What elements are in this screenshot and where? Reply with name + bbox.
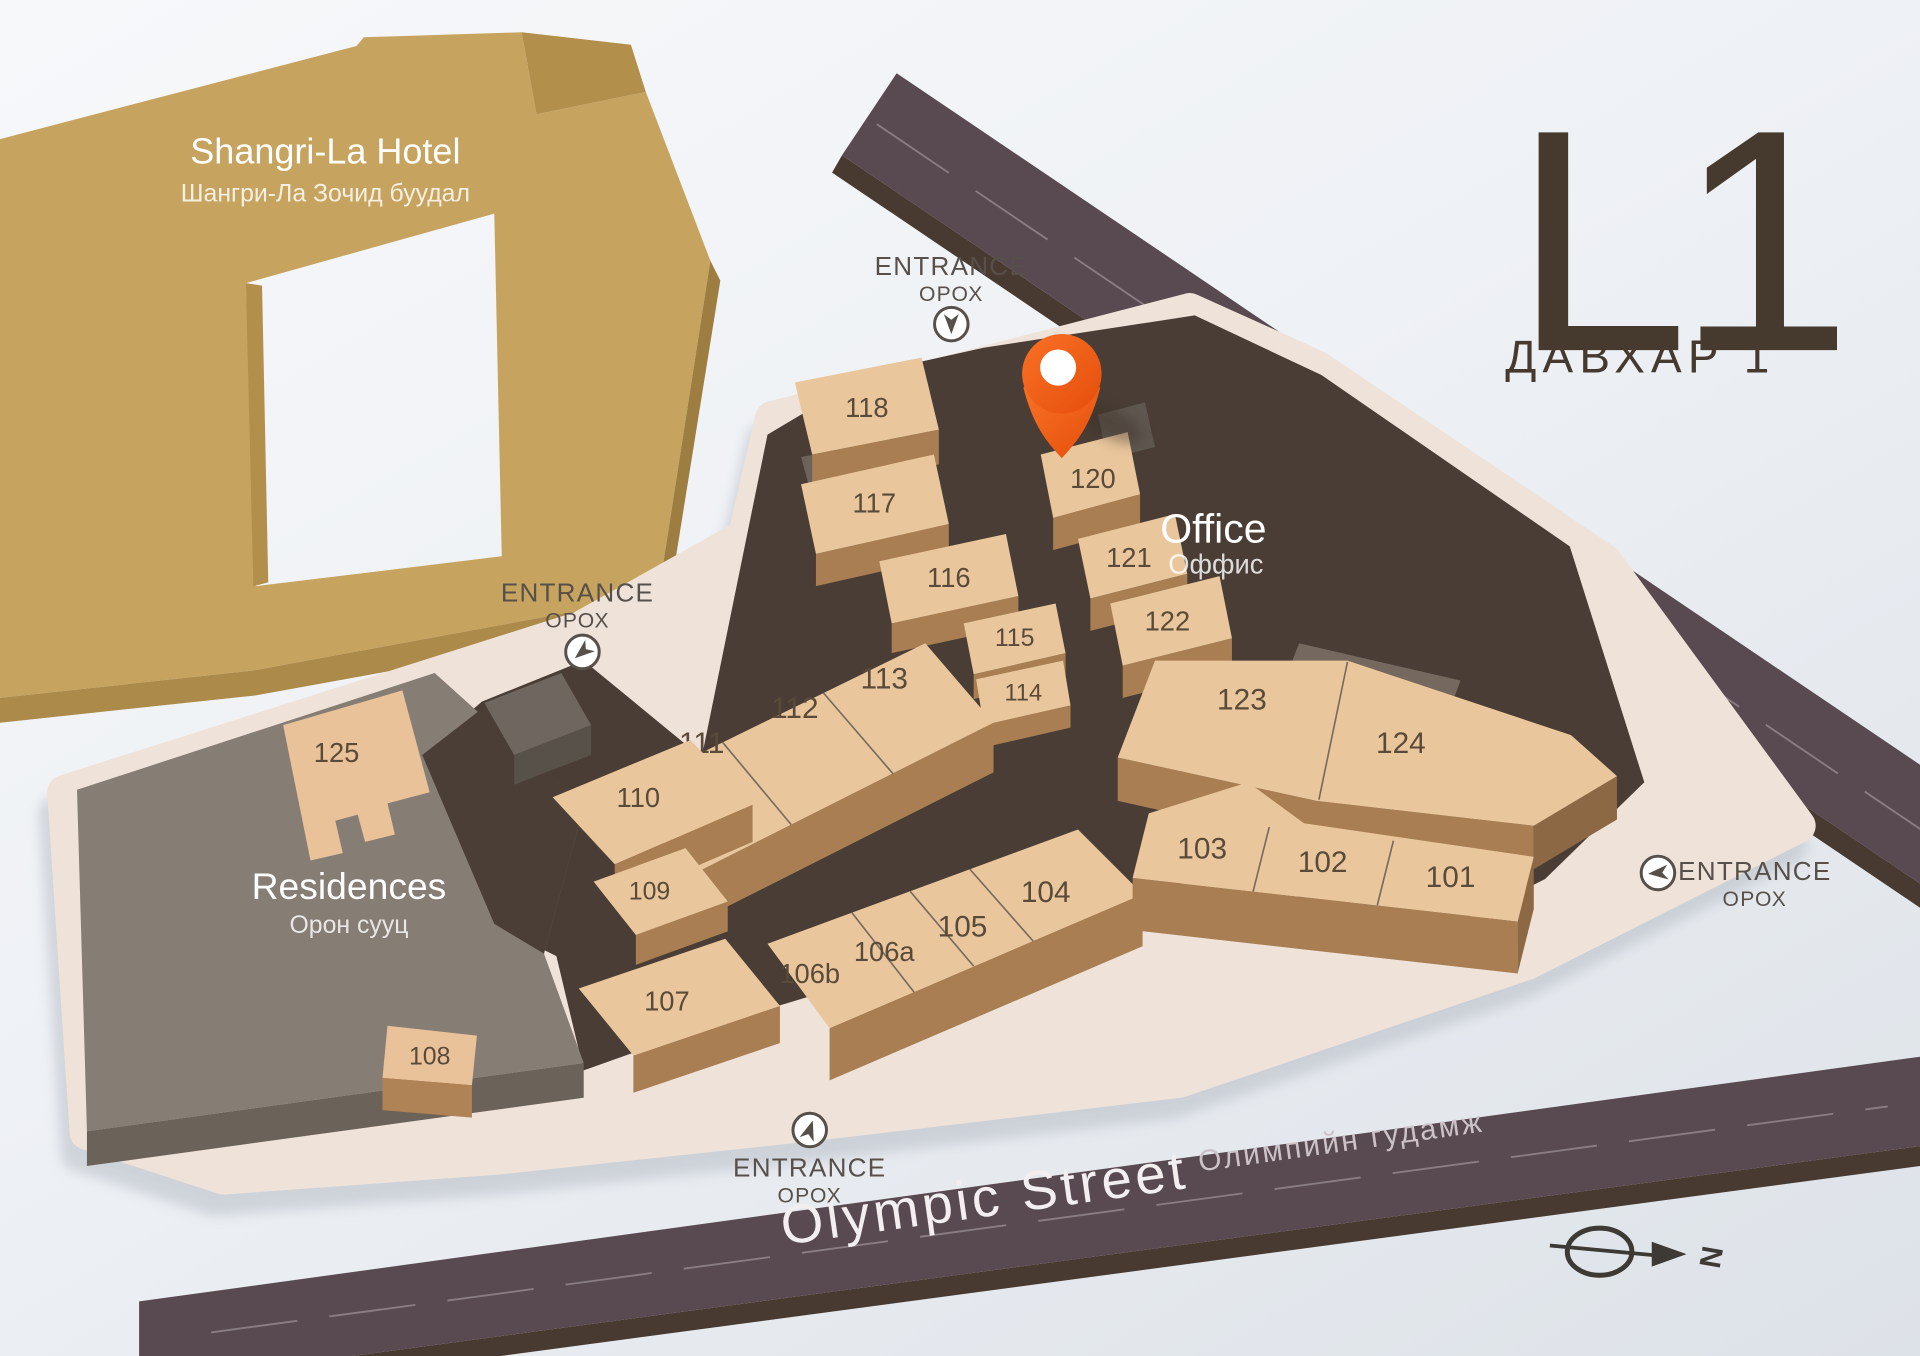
- unit-label: 112: [771, 692, 819, 725]
- unit-label: 109: [629, 878, 670, 905]
- pin-hole: [1040, 350, 1076, 386]
- floor-map: Shangri-La Hotel Шангри-Ла Зочид буудал …: [0, 0, 1920, 1356]
- unit-label: 122: [1145, 606, 1191, 637]
- compass-arrow: [1652, 1242, 1687, 1267]
- unit-label: 105: [938, 911, 988, 944]
- entrance-arrow-icon: [1641, 856, 1675, 890]
- unit-label: 113: [860, 662, 908, 695]
- unit-label: 123: [1217, 683, 1267, 716]
- unit-label: 120: [1070, 463, 1116, 494]
- unit-label: 116: [927, 562, 971, 593]
- hotel-label: Shangri-La Hotel: [190, 130, 460, 171]
- entrance-label: ENTRANCE: [1678, 856, 1831, 886]
- office-label-mn: Оффис: [1168, 548, 1263, 579]
- entrance-label-mn: ОРОХ: [545, 610, 610, 633]
- entrance-label-mn: ОРОХ: [777, 1185, 842, 1208]
- unit-label: 114: [1005, 679, 1043, 705]
- unit-label: 103: [1177, 832, 1227, 865]
- unit-label: 115: [995, 625, 1035, 652]
- entrance-label-mn: ОРОХ: [919, 283, 984, 306]
- unit-label: 101: [1426, 861, 1476, 894]
- entrance-label: ENTRANCE: [501, 578, 654, 608]
- entrance-label: ENTRANCE: [875, 251, 1028, 281]
- entrance-label-mn: ОРОХ: [1723, 888, 1788, 911]
- residences-label: Residences: [252, 865, 447, 907]
- office-label: Office: [1160, 505, 1266, 551]
- unit-label: 125: [314, 737, 360, 768]
- compass-north-label: N: [1692, 1243, 1728, 1270]
- compass-icon: N: [1550, 1228, 1729, 1275]
- unit-108[interactable]: 108: [383, 1026, 477, 1118]
- entrance-arrow-icon: [793, 1113, 827, 1147]
- entrance-label: ENTRANCE: [733, 1153, 886, 1183]
- unit-label: 104: [1021, 876, 1071, 909]
- entrance-arrow-icon: [566, 635, 600, 669]
- office-area: Office Оффис: [1160, 505, 1266, 579]
- level-label-mn: ДАВХАР 1: [1505, 331, 1775, 383]
- unit-label: 106b: [779, 958, 840, 989]
- unit-label: 118: [845, 392, 889, 423]
- entrance-north[interactable]: ENTRANCE ОРОХ: [875, 251, 1028, 341]
- residences-label-mn: Орон сууц: [289, 912, 408, 939]
- unit-label: 117: [853, 488, 897, 519]
- unit-label: 124: [1376, 727, 1426, 760]
- unit-label: 102: [1298, 846, 1348, 879]
- level-indicator: L1 ДАВХАР 1: [1505, 64, 1840, 418]
- unit-label: 107: [644, 986, 690, 1017]
- unit-label: 110: [617, 782, 661, 813]
- unit-label: 106a: [854, 936, 916, 967]
- entrance-arrow-icon: [935, 307, 969, 341]
- unit-label: 121: [1106, 542, 1152, 573]
- hotel-label-mn: Шангри-Ла Зочид буудал: [181, 181, 470, 208]
- unit-label: 108: [409, 1044, 450, 1071]
